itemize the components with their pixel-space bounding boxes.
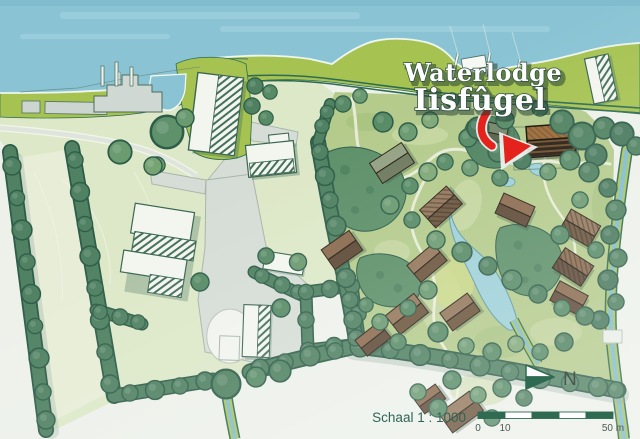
scale-label: Schaal 1 : 1000: [372, 410, 466, 425]
scale-tick-50m: 50 m: [602, 423, 624, 434]
north-label: N: [563, 369, 577, 390]
scale-tick-0: 0: [475, 423, 481, 434]
map-title-line2: Iisfûgel: [414, 83, 547, 118]
site-plan-map: Waterlodge Waterlodge Iisfûgel Iisfûgel …: [0, 0, 640, 439]
scale-tick-10: 10: [499, 423, 511, 434]
map-title: Waterlodge Waterlodge Iisfûgel Iisfûgel: [403, 58, 565, 121]
site-plan-screenshot: Waterlodge Waterlodge Iisfûgel Iisfûgel …: [0, 0, 640, 439]
